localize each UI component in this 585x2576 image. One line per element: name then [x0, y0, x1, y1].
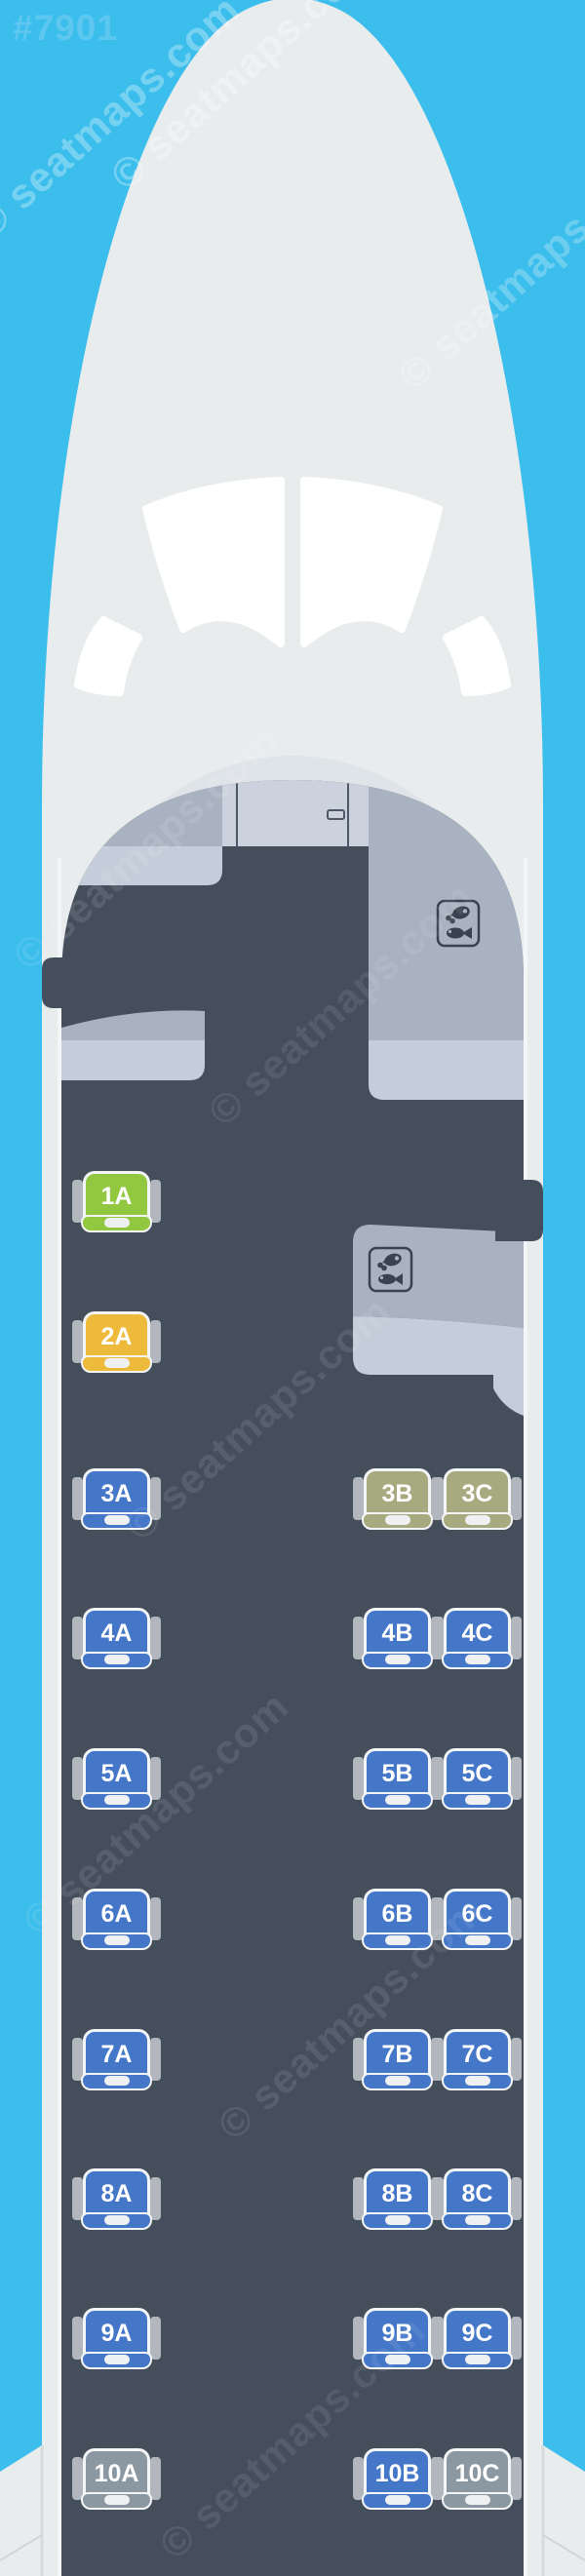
seat-armrest	[433, 1757, 444, 1800]
seat-label: 6C	[462, 1902, 493, 1927]
seat-armrest	[72, 1320, 83, 1363]
seat-buckle-icon	[104, 1795, 130, 1805]
seat-2A[interactable]: 2A	[72, 1311, 161, 1373]
seat-buckle-icon	[104, 1515, 130, 1525]
seat-buckle-icon	[104, 1935, 130, 1945]
seat-cushion	[81, 1355, 152, 1373]
seat-label: 9A	[101, 2322, 133, 2346]
seat-label: 9B	[382, 2322, 413, 2346]
seat-armrest	[150, 1180, 161, 1223]
left-boarding-door	[42, 957, 127, 1008]
seat-cushion	[81, 1792, 152, 1810]
seatmap-id-label: #7901	[13, 8, 118, 49]
seat-9A[interactable]: 9A	[72, 2308, 161, 2369]
seat-armrest	[353, 1897, 364, 1940]
seat-armrest	[433, 1897, 444, 1940]
seat-armrest	[511, 2177, 522, 2220]
seat-armrest	[353, 2457, 364, 2500]
seat-cushion	[81, 1932, 152, 1950]
seat-buckle-icon	[465, 2076, 490, 2086]
seat-cushion	[362, 1652, 433, 1669]
seat-armrest	[353, 2038, 364, 2081]
seat-6B[interactable]: 6B	[353, 1889, 442, 1950]
seat-buckle-icon	[465, 1515, 490, 1525]
seat-label: 2A	[101, 1325, 133, 1349]
seat-buckle-icon	[385, 2495, 410, 2505]
seat-label: 3A	[101, 1482, 133, 1506]
seat-5A[interactable]: 5A	[72, 1748, 161, 1810]
seat-buckle-icon	[465, 1935, 490, 1945]
right-service-door	[495, 1180, 543, 1241]
seat-label: 5C	[462, 1762, 493, 1786]
seat-label: 5A	[101, 1762, 133, 1786]
seat-label: 3C	[462, 1482, 493, 1506]
seat-label: 9C	[462, 2322, 493, 2346]
seat-cushion	[362, 1512, 433, 1530]
seat-armrest	[150, 1477, 161, 1520]
seat-armrest	[511, 2317, 522, 2360]
seat-armrest	[150, 1757, 161, 1800]
seat-armrest	[72, 1757, 83, 1800]
seat-label: 3B	[382, 1482, 413, 1506]
seat-8C[interactable]: 8C	[433, 2168, 522, 2230]
seat-4C[interactable]: 4C	[433, 1608, 522, 1669]
left-wall-highlight	[58, 858, 61, 2576]
seat-label: 7C	[462, 2043, 493, 2067]
seat-armrest	[511, 2038, 522, 2081]
seat-buckle-icon	[465, 1795, 490, 1805]
seat-armrest	[511, 2457, 522, 2500]
seat-label: 8B	[382, 2182, 413, 2206]
seat-armrest	[72, 1897, 83, 1940]
seat-10B[interactable]: 10B	[353, 2448, 442, 2510]
seat-cushion	[81, 1652, 152, 1669]
seat-buckle-icon	[104, 1218, 130, 1228]
seat-6A[interactable]: 6A	[72, 1889, 161, 1950]
seat-armrest	[150, 1617, 161, 1659]
seat-buckle-icon	[385, 2076, 410, 2086]
seat-buckle-icon	[465, 1655, 490, 1664]
seat-7B[interactable]: 7B	[353, 2029, 442, 2090]
seat-label: 7B	[382, 2043, 413, 2067]
seat-3A[interactable]: 3A	[72, 1468, 161, 1530]
seat-5C[interactable]: 5C	[433, 1748, 522, 1810]
seat-buckle-icon	[104, 2495, 130, 2505]
seat-armrest	[72, 2457, 83, 2500]
seat-armrest	[72, 2317, 83, 2360]
seat-label: 10B	[375, 2462, 420, 2486]
seat-3B[interactable]: 3B	[353, 1468, 442, 1530]
seat-armrest	[72, 2038, 83, 2081]
right-wing-root	[543, 2445, 585, 2576]
seat-label: 8C	[462, 2182, 493, 2206]
seat-buckle-icon	[385, 2355, 410, 2364]
seat-buckle-icon	[385, 1935, 410, 1945]
seat-armrest	[433, 1477, 444, 1520]
seat-cushion	[442, 1932, 513, 1950]
seat-cushion	[362, 2352, 433, 2369]
seat-armrest	[72, 2177, 83, 2220]
seat-buckle-icon	[385, 1795, 410, 1805]
cockpit-door	[222, 775, 369, 846]
cockpit-door-handle	[328, 810, 344, 819]
seat-9C[interactable]: 9C	[433, 2308, 522, 2369]
seat-label: 4B	[382, 1621, 413, 1646]
seat-label: 5B	[382, 1762, 413, 1786]
seat-cushion	[81, 2073, 152, 2090]
seat-cushion	[442, 2492, 513, 2510]
seat-label: 10C	[455, 2462, 500, 2486]
seat-cushion	[81, 2492, 152, 2510]
seat-armrest	[72, 1617, 83, 1659]
seat-label: 1A	[101, 1185, 133, 1209]
seat-label: 4A	[101, 1621, 133, 1646]
seat-armrest	[353, 1617, 364, 1659]
seat-8B[interactable]: 8B	[353, 2168, 442, 2230]
seat-cushion	[81, 2352, 152, 2369]
seat-cushion	[442, 1652, 513, 1669]
seat-cushion	[442, 1792, 513, 1810]
seat-armrest	[353, 2177, 364, 2220]
seat-label: 8A	[101, 2182, 133, 2206]
seat-armrest	[72, 1477, 83, 1520]
seat-10C[interactable]: 10C	[433, 2448, 522, 2510]
seat-5B[interactable]: 5B	[353, 1748, 442, 1810]
seat-buckle-icon	[104, 1655, 130, 1664]
seat-buckle-icon	[104, 2215, 130, 2225]
seat-armrest	[433, 2038, 444, 2081]
seat-10A[interactable]: 10A	[72, 2448, 161, 2510]
seat-4B[interactable]: 4B	[353, 1608, 442, 1669]
seat-armrest	[511, 1897, 522, 1940]
seat-1A[interactable]: 1A	[72, 1171, 161, 1232]
seat-cushion	[442, 2352, 513, 2369]
seat-buckle-icon	[465, 2215, 490, 2225]
seat-6C[interactable]: 6C	[433, 1889, 522, 1950]
seat-cushion	[81, 1215, 152, 1232]
seat-8A[interactable]: 8A	[72, 2168, 161, 2230]
seat-cushion	[442, 2073, 513, 2090]
seat-label: 6A	[101, 1902, 133, 1927]
seat-label: 6B	[382, 1902, 413, 1927]
seat-label: 7A	[101, 2043, 133, 2067]
seat-7A[interactable]: 7A	[72, 2029, 161, 2090]
seat-armrest	[150, 2177, 161, 2220]
seat-armrest	[433, 2317, 444, 2360]
seat-3C[interactable]: 3C	[433, 1468, 522, 1530]
seat-cushion	[81, 2212, 152, 2230]
seat-4A[interactable]: 4A	[72, 1608, 161, 1669]
seat-armrest	[511, 1617, 522, 1659]
seat-cushion	[442, 2212, 513, 2230]
seat-buckle-icon	[385, 2215, 410, 2225]
seat-cushion	[362, 1932, 433, 1950]
seat-cushion	[362, 2073, 433, 2090]
seat-armrest	[150, 2038, 161, 2081]
seat-7C[interactable]: 7C	[433, 2029, 522, 2090]
right-wall-highlight	[524, 858, 527, 2576]
seat-label: 10A	[95, 2462, 139, 2486]
seat-armrest	[150, 1320, 161, 1363]
seat-buckle-icon	[385, 1515, 410, 1525]
seat-cushion	[362, 2212, 433, 2230]
seat-cushion	[362, 1792, 433, 1810]
seat-armrest	[353, 1477, 364, 1520]
seatmap-page: #7901	[0, 0, 585, 2576]
seat-armrest	[353, 1757, 364, 1800]
seat-armrest	[511, 1757, 522, 1800]
seat-buckle-icon	[465, 2355, 490, 2364]
seat-armrest	[433, 1617, 444, 1659]
seat-armrest	[150, 2457, 161, 2500]
seat-armrest	[353, 2317, 364, 2360]
seat-armrest	[433, 2457, 444, 2500]
seat-buckle-icon	[385, 1655, 410, 1664]
seat-buckle-icon	[104, 2355, 130, 2364]
seat-armrest	[150, 2317, 161, 2360]
seat-cushion	[442, 1512, 513, 1530]
seat-armrest	[433, 2177, 444, 2220]
seat-armrest	[511, 1477, 522, 1520]
seat-9B[interactable]: 9B	[353, 2308, 442, 2369]
seat-cushion	[81, 1512, 152, 1530]
seat-label: 4C	[462, 1621, 493, 1646]
seat-buckle-icon	[465, 2495, 490, 2505]
left-wing-root	[0, 2445, 42, 2576]
seat-buckle-icon	[104, 1358, 130, 1368]
seat-cushion	[362, 2492, 433, 2510]
seat-armrest	[150, 1897, 161, 1940]
seat-armrest	[72, 1180, 83, 1223]
seat-buckle-icon	[104, 2076, 130, 2086]
